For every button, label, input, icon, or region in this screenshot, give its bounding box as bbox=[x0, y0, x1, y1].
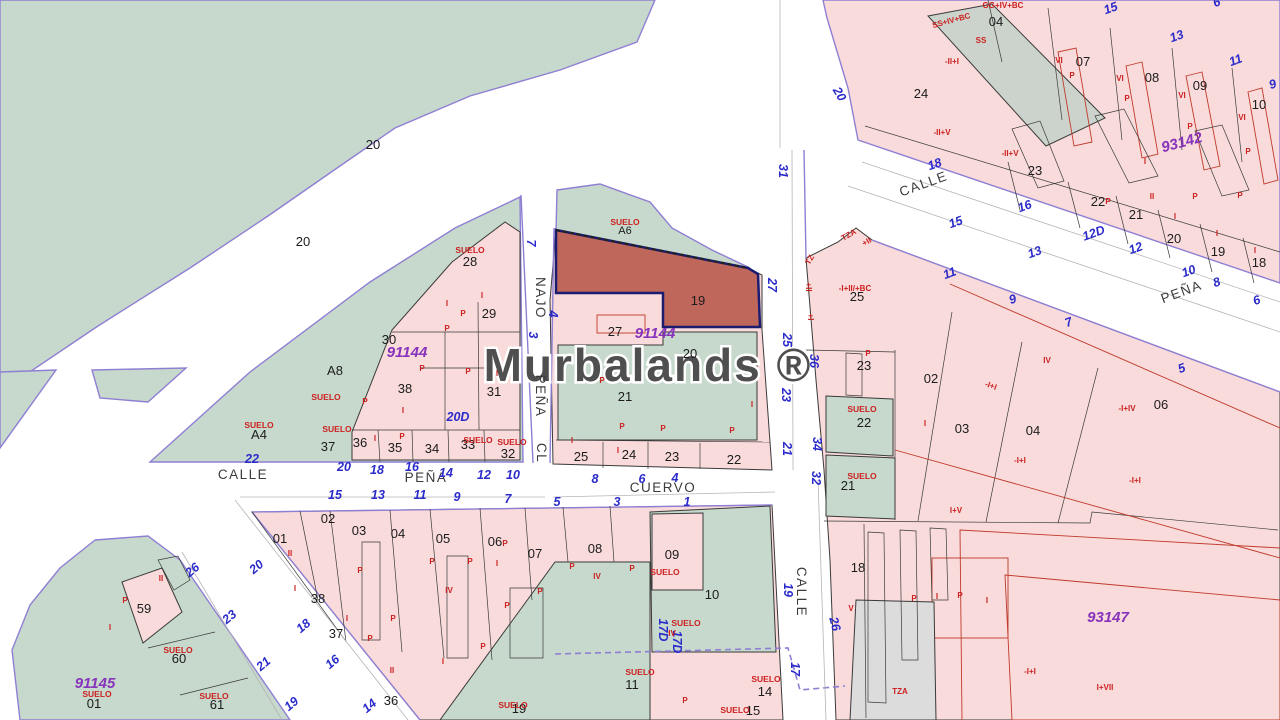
street-number-label: 16 bbox=[1016, 197, 1035, 215]
street-number-label: 20 bbox=[246, 557, 266, 577]
building-code-label: I bbox=[936, 592, 938, 601]
building-code-label: I bbox=[617, 446, 619, 455]
parcel-number-label: 20 bbox=[1167, 231, 1181, 246]
suelo-label: SUELO bbox=[455, 245, 485, 255]
building-code-label: P bbox=[865, 349, 871, 358]
building-code-label: P bbox=[122, 596, 128, 605]
zone-number-label: 91144 bbox=[635, 325, 676, 342]
street-number-label: 4 bbox=[546, 310, 560, 318]
suelo-21-parcel bbox=[826, 455, 895, 519]
cadastral-map: Murbalands ®9314291144911449114593147CAL… bbox=[0, 0, 1280, 720]
building-code-label: I bbox=[442, 657, 444, 666]
building-code-label: I bbox=[346, 614, 348, 623]
building-code-label: P bbox=[682, 696, 688, 705]
building-code-label: VI bbox=[1178, 91, 1186, 100]
building-code-label: II bbox=[390, 666, 394, 675]
building-code-label: I bbox=[374, 434, 376, 443]
street-number-label: 7 bbox=[505, 492, 513, 506]
street-number-label: 5 bbox=[554, 495, 562, 509]
street-number-label: 25 bbox=[780, 332, 794, 348]
parcel-number-label: 03 bbox=[352, 523, 366, 538]
parcel-number-label: 19 bbox=[1211, 244, 1225, 259]
building-code-label: P bbox=[367, 634, 373, 643]
street-number-label: 13 bbox=[1026, 243, 1044, 261]
building-code-label: I bbox=[481, 291, 483, 300]
parcel-number-label: 25 bbox=[574, 449, 588, 464]
street-number-label: 18 bbox=[370, 463, 384, 477]
street-number-label: 9 bbox=[454, 490, 461, 504]
parcel-number-label: 04 bbox=[989, 14, 1003, 29]
street-name-label: CALLE bbox=[794, 567, 809, 617]
street-number-label: 18 bbox=[294, 616, 314, 636]
street-number-label: 6 bbox=[1251, 292, 1263, 308]
building-code-label: I bbox=[751, 400, 753, 409]
parcel-number-label: 10 bbox=[1252, 97, 1266, 112]
suelo-label: SUELO bbox=[498, 700, 528, 710]
street-number-label: 23 bbox=[779, 387, 793, 402]
parcel-number-label: 36 bbox=[353, 435, 367, 450]
parcel-number-label: 28 bbox=[463, 254, 477, 269]
building-code-label: P bbox=[537, 587, 543, 596]
suelo-label: SUELO bbox=[463, 435, 493, 445]
cadastral-map-viewport: Murbalands ®9314291144911449114593147CAL… bbox=[0, 0, 1280, 720]
building-code-label: TZA bbox=[892, 687, 908, 696]
watermark: Murbalands ® bbox=[484, 339, 813, 391]
street-number-label: 22 bbox=[244, 452, 259, 466]
building-code-label: P bbox=[619, 422, 625, 431]
street-name-label: PEÑA bbox=[533, 375, 548, 418]
building-code-label: P bbox=[1237, 191, 1243, 200]
building-code-label: V bbox=[848, 604, 854, 613]
street-number-label: 3 bbox=[526, 332, 540, 339]
green-patch bbox=[92, 368, 186, 402]
building-code-label: P bbox=[357, 566, 363, 575]
parcel-number-label: 04 bbox=[1026, 423, 1040, 438]
parcel-number-label: 01 bbox=[273, 531, 287, 546]
street-name-label: CL bbox=[534, 443, 549, 463]
parcel-number-label: 20 bbox=[366, 137, 380, 152]
building-code-label: -I+I bbox=[1024, 667, 1036, 676]
building-code-label: P bbox=[390, 614, 396, 623]
building-code-label: P bbox=[502, 539, 508, 548]
building-code-label: P bbox=[419, 364, 425, 373]
building-code-label: P bbox=[1245, 147, 1251, 156]
building-code-label: -II+V bbox=[933, 128, 951, 137]
street-number-label: 14 bbox=[360, 696, 380, 716]
parcel-number-label: 07 bbox=[528, 546, 542, 561]
street-number-label: 20 bbox=[336, 460, 351, 474]
suelo-label: SUELO bbox=[847, 471, 877, 481]
suelo-label: SUELO bbox=[322, 424, 352, 434]
gray-parcel bbox=[850, 600, 936, 720]
parcel-number-label: 09 bbox=[1193, 78, 1207, 93]
building-code-label: I bbox=[571, 436, 573, 445]
parcel-number-label: 21 bbox=[1129, 207, 1143, 222]
parcel-number-label: 08 bbox=[1145, 70, 1159, 85]
building-code-label: P bbox=[429, 557, 435, 566]
parcel-number-label: 59 bbox=[137, 601, 151, 616]
building-code-label: P bbox=[1124, 94, 1130, 103]
building-code-label: II bbox=[288, 549, 292, 558]
parcel-number-label: 23 bbox=[857, 358, 871, 373]
street-number-label: 34 bbox=[810, 437, 824, 451]
street-name-label: PEÑA bbox=[1159, 277, 1204, 306]
building-code-label: P bbox=[1187, 122, 1193, 131]
building-code-label: P bbox=[460, 309, 466, 318]
street-number-label: 4 bbox=[671, 471, 679, 485]
parcel-number-label: 38 bbox=[311, 591, 325, 606]
building-code-label: -I+IV bbox=[1118, 404, 1136, 413]
parcel-number-label: 37 bbox=[321, 439, 335, 454]
building-code-label: VI bbox=[1116, 74, 1124, 83]
building-code-label: -I+I bbox=[1129, 476, 1141, 485]
suelo-label: SUELO bbox=[82, 689, 112, 699]
parcel-number-label: 20 bbox=[683, 346, 697, 361]
parcel-number-label: 23 bbox=[665, 449, 679, 464]
suelo-label: SUELO bbox=[847, 404, 877, 414]
building-code-label: I bbox=[1216, 229, 1218, 238]
street-number-label: 6 bbox=[639, 472, 647, 486]
street-number-label: 20 bbox=[829, 84, 849, 104]
parcel-number-label: 10 bbox=[705, 587, 719, 602]
building-code-label: P bbox=[599, 376, 605, 385]
parcel-number-label: 23 bbox=[1028, 163, 1042, 178]
parcel-number-label: 38 bbox=[398, 381, 412, 396]
parcel-number-label: 18 bbox=[851, 560, 865, 575]
building-code-label: P bbox=[465, 367, 471, 376]
parcel-number-label: 35 bbox=[388, 440, 402, 455]
building-code-label: I+V bbox=[950, 506, 963, 515]
building-code-label: P bbox=[1105, 197, 1111, 206]
parcel-number-label: 04 bbox=[391, 526, 405, 541]
building-code-label: P bbox=[911, 594, 917, 603]
street-number-label: 13 bbox=[371, 488, 385, 502]
street-number-label: 1 bbox=[684, 495, 691, 509]
building-code-label: +II bbox=[804, 282, 813, 291]
parcel-number-label: 29 bbox=[482, 306, 496, 321]
parcel-number-label: 14 bbox=[758, 684, 772, 699]
building-code-label: IV bbox=[668, 629, 676, 638]
street-number-label: 27 bbox=[765, 277, 779, 293]
building-code-label: P bbox=[957, 591, 963, 600]
parcel-number-label: 34 bbox=[425, 441, 439, 456]
building-code-label: I bbox=[294, 584, 296, 593]
parcel-number-label: 24 bbox=[914, 86, 928, 101]
street-number-label: 11 bbox=[414, 488, 427, 502]
street-name-label: CALLE bbox=[897, 168, 949, 199]
building-code-label: I bbox=[924, 419, 926, 428]
parcel-number-label: 37 bbox=[329, 626, 343, 641]
building-code-label: I bbox=[402, 406, 404, 415]
building-code-label: II bbox=[1150, 192, 1154, 201]
building-code-label: P bbox=[1192, 192, 1198, 201]
street-number-label: 10 bbox=[506, 468, 520, 482]
parcel-number-label: 36 bbox=[384, 693, 398, 708]
street-number-label: 19 bbox=[781, 583, 795, 597]
building-code-label: I bbox=[1144, 157, 1146, 166]
parcel-number-label: 31 bbox=[487, 384, 501, 399]
street-number-label: 8 bbox=[592, 472, 599, 486]
suelo-label: SUELO bbox=[497, 437, 527, 447]
street-number-label: 36 bbox=[807, 354, 821, 369]
suelo-label: SUELO bbox=[650, 567, 680, 577]
parcel-number-label: 22 bbox=[857, 415, 871, 430]
suelo-label: SUELO bbox=[199, 691, 229, 701]
street-number-label: 20D bbox=[446, 410, 470, 424]
parcel-number-label: 02 bbox=[321, 511, 335, 526]
suelo-label: SUELO bbox=[244, 420, 274, 430]
street-number-label: 16 bbox=[405, 460, 420, 474]
building-code-label: I bbox=[496, 369, 498, 378]
building-code-label: IV bbox=[1043, 356, 1051, 365]
parcel-number-label: 27 bbox=[608, 324, 622, 339]
street-number-label: 31 bbox=[776, 164, 790, 178]
suelo-label: SUELO bbox=[671, 618, 701, 628]
building-code-label: SS bbox=[976, 36, 987, 45]
building-code-label: -I+II/+BC bbox=[839, 284, 872, 293]
parcel-number-label: 22 bbox=[727, 452, 741, 467]
building-code-label: P bbox=[480, 642, 486, 651]
building-code-label: -I+I bbox=[1014, 456, 1026, 465]
parcel-number-label: 30 bbox=[382, 332, 396, 347]
street-number-label: 15 bbox=[947, 213, 966, 231]
building-code-label: II bbox=[159, 574, 163, 583]
building-code-label: P bbox=[660, 424, 666, 433]
street-number-label: 32 bbox=[809, 471, 823, 485]
parcel-number-label: 21 bbox=[618, 389, 632, 404]
street-number-label: 17 bbox=[788, 662, 802, 677]
building-code-label: P bbox=[629, 564, 635, 573]
parcel-number-label: 02 bbox=[924, 371, 938, 386]
street-number-label: 21 bbox=[780, 441, 794, 456]
building-code-label: P bbox=[729, 426, 735, 435]
suelo-label: SUELO bbox=[751, 674, 781, 684]
building-code-label: IV bbox=[593, 572, 601, 581]
suelo-label: SUELO bbox=[163, 645, 193, 655]
building-code-label: I bbox=[496, 559, 498, 568]
parcel-number-label: 32 bbox=[501, 446, 515, 461]
street-number-label: 7 bbox=[524, 240, 538, 248]
street-number-label: 12D bbox=[1080, 223, 1106, 244]
building-code-label: P bbox=[1069, 71, 1075, 80]
parcel-number-label: 24 bbox=[622, 447, 636, 462]
building-code-label: I bbox=[1174, 212, 1176, 221]
building-code-label: P bbox=[569, 562, 575, 571]
street-number-label: 16 bbox=[323, 651, 343, 671]
building-code-label: -II+V bbox=[1001, 149, 1019, 158]
parcel-number-label: 06 bbox=[1154, 397, 1168, 412]
street-number-label: 10 bbox=[1180, 262, 1198, 280]
parcel-number-label: 08 bbox=[588, 541, 602, 556]
street-number-label: 3 bbox=[614, 495, 621, 509]
parcel-number-label: 20 bbox=[296, 234, 310, 249]
suelo-label: SUELO bbox=[311, 392, 341, 402]
building-code-label: I bbox=[986, 596, 988, 605]
building-code-label: P bbox=[467, 557, 473, 566]
green-patch bbox=[0, 370, 56, 448]
parcel-number-label: A8 bbox=[327, 363, 343, 378]
parcel-number-label: 03 bbox=[955, 421, 969, 436]
building-code-label: +I bbox=[806, 314, 815, 321]
street-number-label: 19 bbox=[282, 694, 302, 714]
suelo-label: SUELO bbox=[610, 217, 640, 227]
building-code-label: P bbox=[362, 397, 368, 406]
street-number-label: 12 bbox=[477, 468, 491, 482]
building-code-label: I+VII bbox=[1097, 683, 1114, 692]
parcel-number-label: 05 bbox=[436, 531, 450, 546]
building-code-label: IV bbox=[445, 586, 453, 595]
street-name-label: NAJO bbox=[533, 277, 548, 319]
building-code-label: P bbox=[399, 432, 405, 441]
parcel-number-label: 11 bbox=[625, 677, 639, 692]
street-name-label: CALLE bbox=[218, 467, 268, 482]
street-number-label: 12 bbox=[1127, 239, 1145, 257]
parcel-number-label: 06 bbox=[488, 534, 502, 549]
street-number-label: 15 bbox=[328, 488, 343, 502]
parcel-number-label: 18 bbox=[1252, 255, 1266, 270]
parcel-number-label: 07 bbox=[1076, 54, 1090, 69]
suelo-label: SUELO bbox=[720, 705, 750, 715]
suelo-label: SUELO bbox=[625, 667, 655, 677]
building-code-label: P bbox=[504, 601, 510, 610]
building-code-label: I bbox=[109, 623, 111, 632]
parcel-number-label: 09 bbox=[665, 547, 679, 562]
parcel-number-label: 19 bbox=[691, 293, 705, 308]
building-code-label: I bbox=[446, 299, 448, 308]
parcel-number-label: 22 bbox=[1091, 194, 1105, 209]
building-code-label: VI bbox=[1055, 56, 1063, 65]
street-number-label: 14 bbox=[439, 466, 453, 480]
building-code-label: -II+I bbox=[945, 57, 959, 66]
building-code-label: VI bbox=[1238, 113, 1246, 122]
building-code-label: I bbox=[1254, 246, 1256, 255]
building-code-label: P bbox=[444, 324, 450, 333]
building-code-label: GG+IV+BC bbox=[983, 1, 1024, 10]
zone-number-label: 93147 bbox=[1087, 609, 1129, 626]
